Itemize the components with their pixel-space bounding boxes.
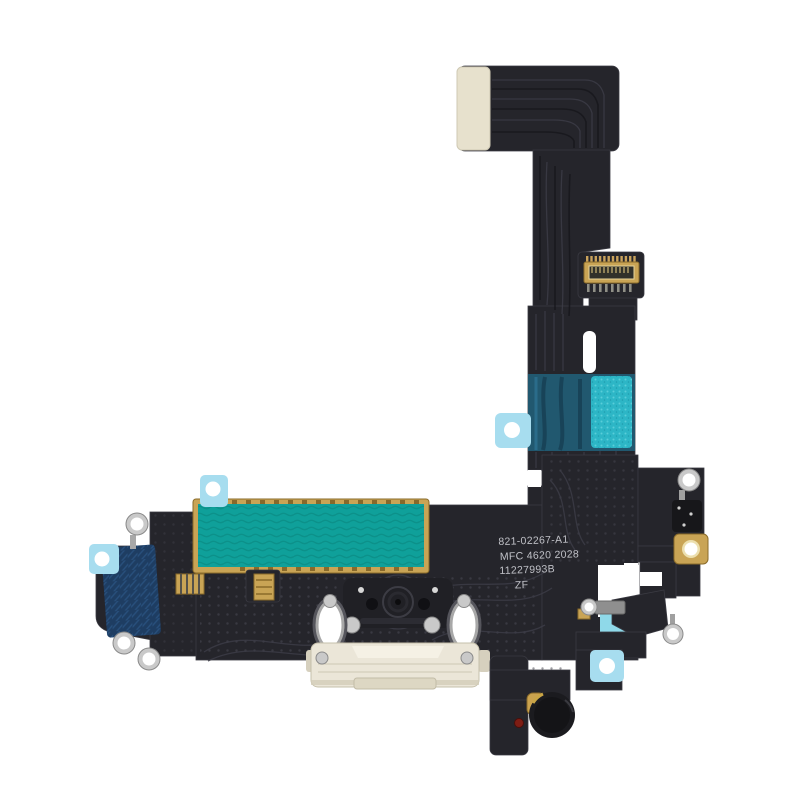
pull-tab-hole	[95, 552, 110, 567]
port-clip-right	[478, 650, 490, 672]
adhesive-stiffener-pad	[457, 67, 490, 150]
flex-slot-cutout	[583, 331, 596, 373]
gold-contact-pad	[674, 534, 708, 564]
pull-tab-hole	[206, 482, 221, 497]
microphone-component	[246, 570, 280, 602]
pull-tab-bottom-right	[590, 650, 624, 682]
antenna-right-strip	[676, 562, 700, 596]
flex-cable-illustration: 821-02267-A1 MFC 4620 2028 11227993B ZF	[0, 0, 800, 800]
solder-bracket	[672, 500, 702, 532]
pull-tab-vertical-flex	[495, 413, 531, 448]
marking-line-3: 11227993B	[499, 563, 555, 577]
microphone-hole-red	[515, 719, 524, 728]
marking-line-4: ZF	[515, 579, 529, 591]
grounding-eyelet	[113, 632, 135, 654]
board-to-board-connector	[578, 252, 644, 298]
pull-tab-hole	[504, 422, 520, 438]
product-photo: 821-02267-A1 MFC 4620 2028 11227993B ZF	[0, 0, 800, 800]
pull-tab-hole	[599, 658, 615, 674]
spring-contact	[424, 617, 440, 633]
pull-tab-left	[89, 544, 119, 574]
port-tongue	[354, 678, 436, 689]
bright-teal-texture	[591, 376, 632, 448]
thermal-pad-texture	[198, 504, 424, 567]
pull-tab-thermal-pad	[200, 475, 228, 507]
grounding-eyelet	[138, 648, 160, 670]
port-screw	[316, 652, 328, 664]
port-face	[352, 646, 444, 658]
marking-line-1: 821-02267-A1	[498, 534, 569, 548]
vertical-flex-adhesive	[528, 374, 635, 451]
port-screw	[461, 652, 473, 664]
gold-contact-comb	[176, 574, 204, 594]
port-mechanism	[343, 578, 453, 633]
flex-notch-cutout	[528, 470, 541, 487]
lightning-port-housing	[306, 643, 490, 689]
